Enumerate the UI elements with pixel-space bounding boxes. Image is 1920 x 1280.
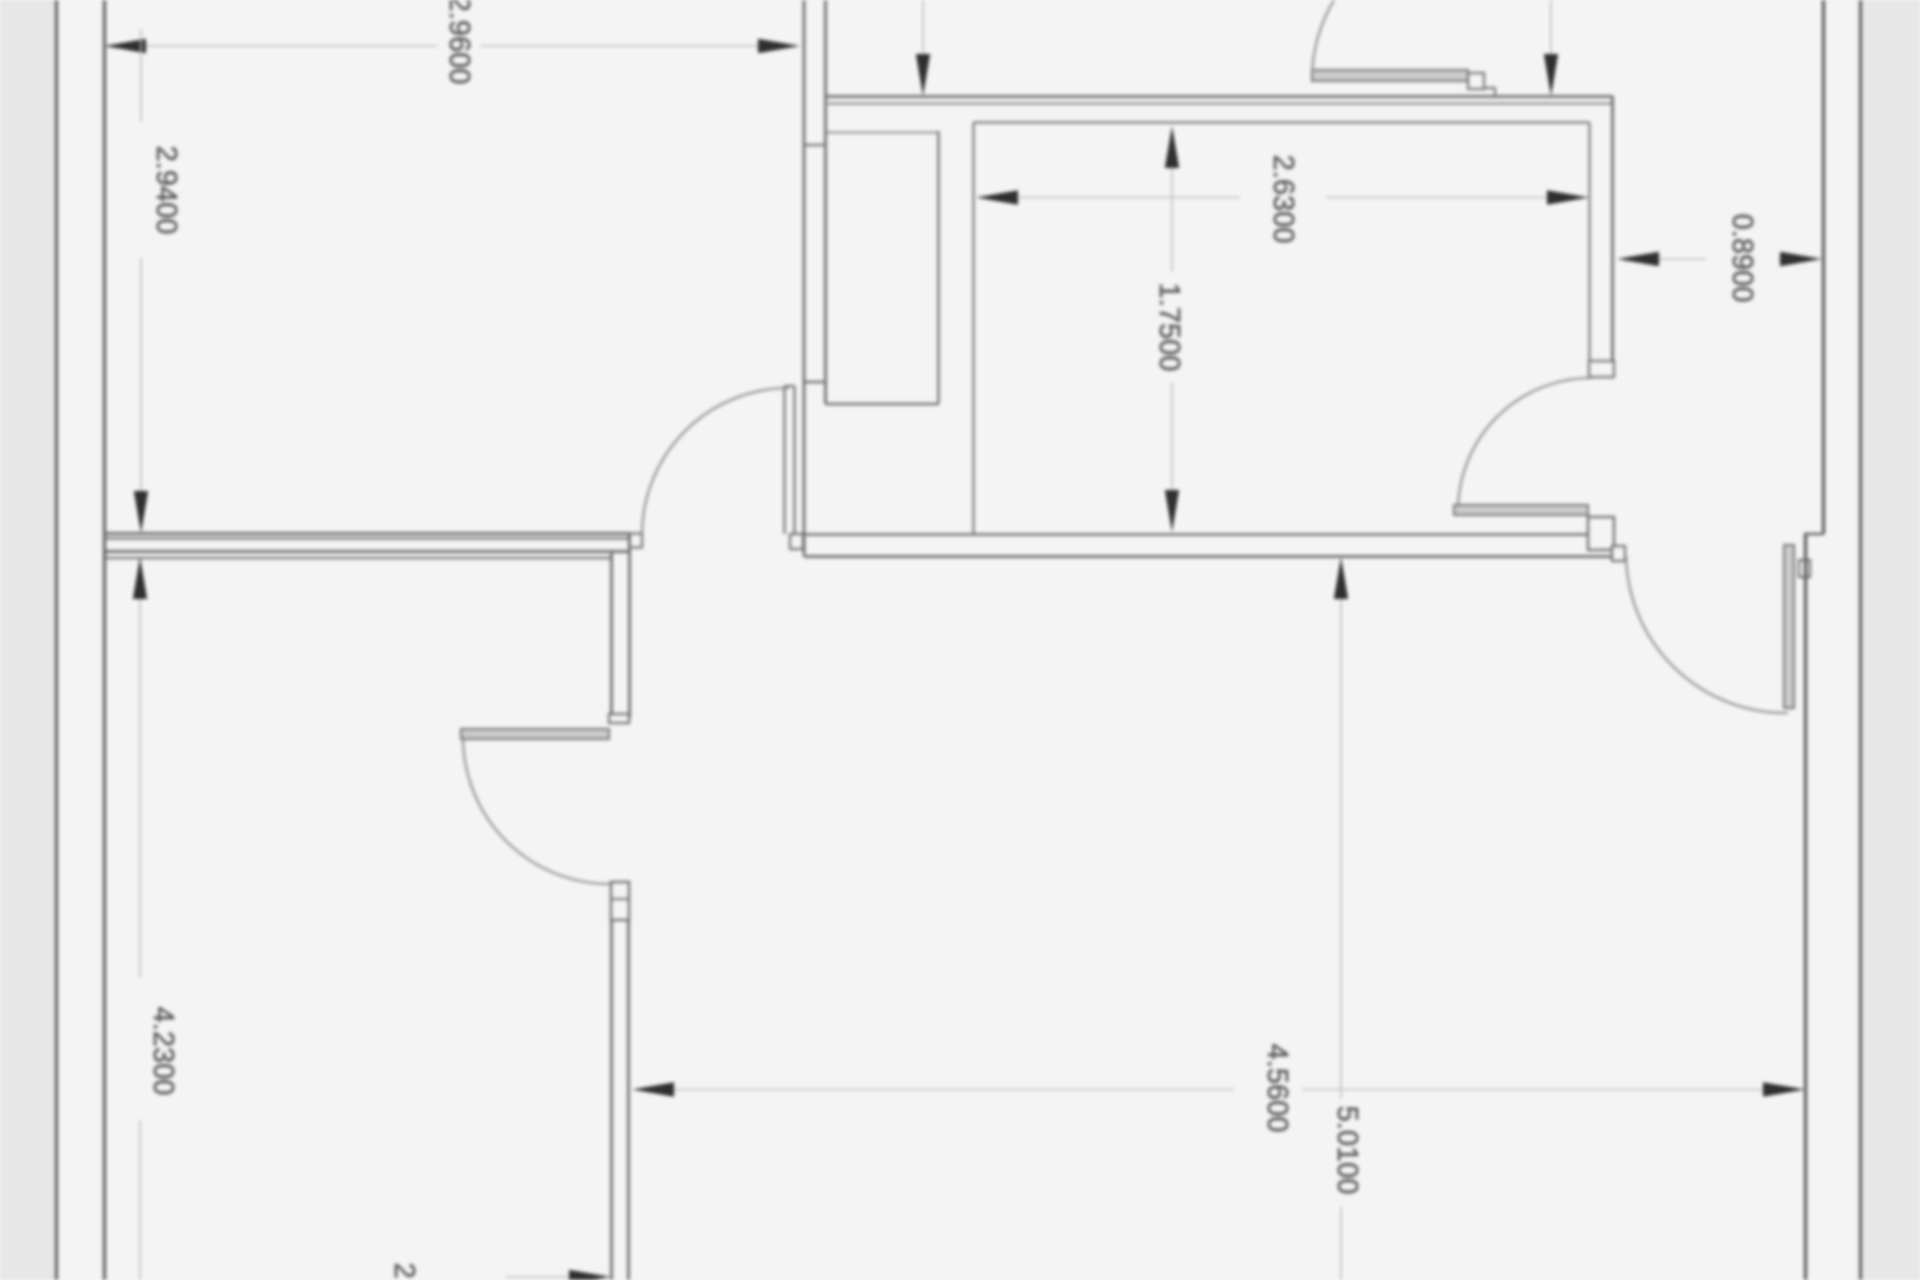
svg-text:5.0100: 5.0100: [1331, 1106, 1363, 1195]
svg-text:4.5600: 4.5600: [1261, 1044, 1293, 1133]
svg-text:4.2300: 4.2300: [147, 1007, 179, 1096]
svg-text:2.1400: 2.1400: [388, 1263, 420, 1280]
svg-text:2.9600: 2.9600: [443, 0, 475, 84]
svg-text:1.7500: 1.7500: [1153, 283, 1185, 372]
svg-text:2.9400: 2.9400: [150, 146, 182, 235]
svg-text:2.6300: 2.6300: [1267, 155, 1299, 244]
svg-text:0.8900: 0.8900: [1726, 214, 1758, 303]
